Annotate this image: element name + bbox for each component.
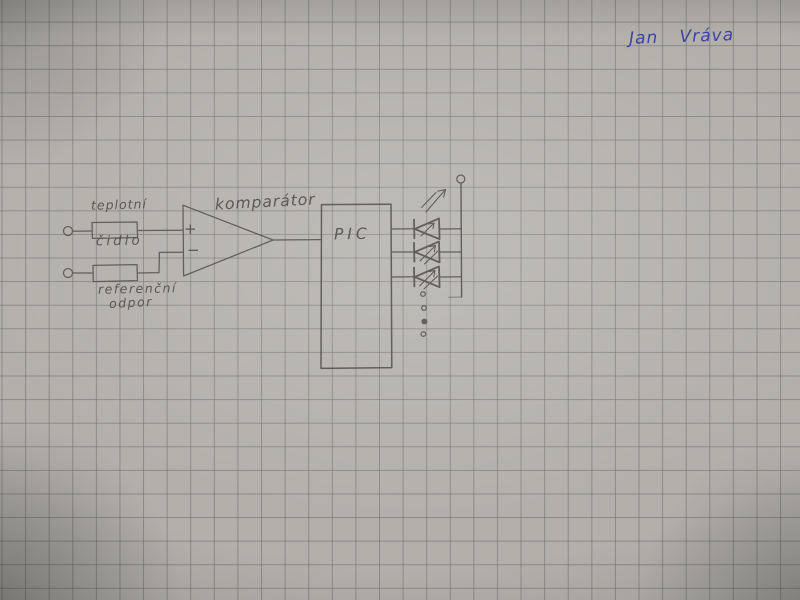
- supply-terminal-icon: [457, 175, 465, 183]
- comparator-plus-sign: +: [184, 222, 197, 237]
- author-signature: Jan Vráva: [629, 25, 735, 49]
- led-row-1: [392, 190, 461, 240]
- reference-resistor: [93, 265, 138, 282]
- bus-wire: [461, 184, 462, 298]
- sensor-label-bottom: čidlo: [96, 235, 143, 249]
- led-row-2: [392, 242, 461, 264]
- led1-triangle: [415, 218, 440, 239]
- reference-input-terminal-icon: [64, 269, 73, 278]
- led-row-3: [392, 266, 461, 289]
- pic-label: PIC: [334, 227, 371, 243]
- led2-triangle: [415, 242, 440, 263]
- photo-of-schematic: teplotní čidlo referenční odpor komparát…: [0, 0, 800, 600]
- sensor-label-top: teplotní: [91, 198, 147, 212]
- reference-to-minus-wire: [138, 252, 184, 273]
- led-continuation-dots-icon: [421, 292, 427, 337]
- sensor-input-terminal-icon: [64, 227, 73, 236]
- comparator-minus-sign: −: [187, 243, 200, 258]
- reference-label-bottom: odpor: [109, 296, 153, 311]
